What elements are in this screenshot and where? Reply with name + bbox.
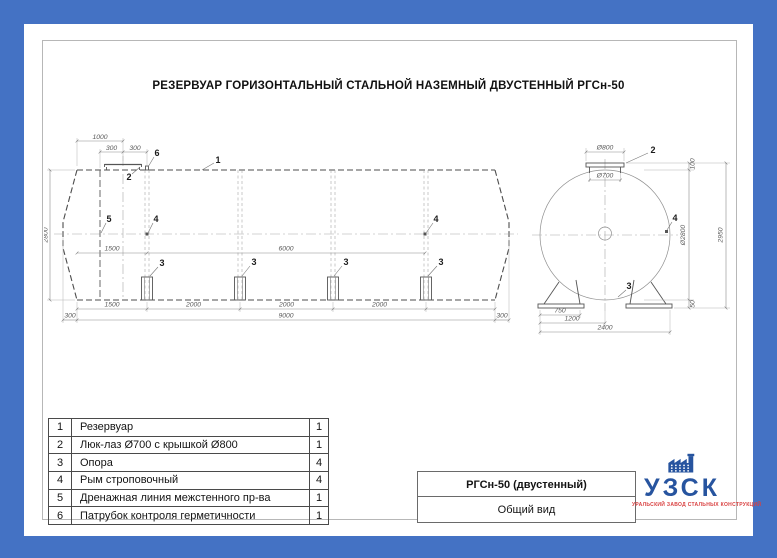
callout-4: 4 — [672, 213, 677, 223]
callout-6: 6 — [154, 148, 159, 158]
part-name-cell: Рым строповочный — [72, 471, 310, 489]
part-number-cell: 2 — [49, 436, 72, 454]
callout-3: 3 — [438, 257, 443, 267]
dim-100: 100 — [690, 158, 697, 170]
dim-2400: 2400 — [596, 325, 612, 332]
dim-6000: 6000 — [278, 246, 293, 253]
dimension-lines-end — [540, 152, 726, 332]
callout-5: 5 — [106, 214, 111, 224]
extension-lines-side — [47, 138, 509, 323]
tank-right-end — [495, 170, 509, 300]
supports-side-view — [142, 277, 432, 300]
side-view: 1000 300 300 2800 1500 6000 1500 2000 20… — [44, 134, 518, 323]
tank-left-end — [63, 170, 77, 300]
dim-2000: 2000 — [185, 302, 201, 309]
factory-icon — [667, 452, 697, 474]
callout-4: 4 — [153, 214, 158, 224]
view-label: Общий вид — [498, 504, 556, 516]
end-view: Ø800 Ø700 100 Ø2800 2950 50 750 1200 240… — [532, 145, 730, 336]
dim-50: 50 — [690, 300, 697, 308]
callout-4: 4 — [433, 214, 438, 224]
callout-3: 3 — [159, 258, 164, 268]
page-title: РЕЗЕРВУАР ГОРИЗОНТАЛЬНЫЙ СТАЛЬНОЙ НАЗЕМН… — [24, 80, 753, 92]
callout-3: 3 — [343, 257, 348, 267]
part-name-cell: Патрубок контроля герметичности — [72, 507, 310, 525]
part-qty-cell: 1 — [310, 419, 329, 437]
logo-text: УЗСК — [632, 475, 732, 501]
parts-table: 1 Резервуар 1 2 Люк-лаз Ø700 с крышкой Ø… — [48, 418, 329, 525]
logo-subtitle: УРАЛЬСКИЙ ЗАВОД СТАЛЬНЫХ КОНСТРУКЦИЙ — [632, 502, 732, 508]
uzsk-logo: УЗСК УРАЛЬСКИЙ ЗАВОД СТАЛЬНЫХ КОНСТРУКЦИ… — [632, 452, 732, 508]
extension-lines-end — [540, 148, 730, 335]
callout-3: 3 — [251, 257, 256, 267]
dim-d700: Ø700 — [596, 173, 614, 180]
part-number-cell: 4 — [49, 471, 72, 489]
dimension-lines-side — [50, 141, 509, 320]
dim-1000: 1000 — [92, 134, 107, 141]
part-number-cell: 5 — [49, 489, 72, 507]
table-row: 6 Патрубок контроля герметичности 1 — [49, 507, 329, 525]
dim-d800: Ø800 — [596, 145, 614, 152]
part-qty-cell: 4 — [310, 471, 329, 489]
dim-1200: 1200 — [564, 316, 579, 323]
dim-2950: 2950 — [718, 227, 725, 243]
drawing-viewer-page: { "title": "РЕЗЕРВУАР ГОРИЗОНТАЛЬНЫЙ СТА… — [0, 0, 777, 558]
callout-1: 1 — [215, 155, 220, 165]
dim-2000: 2000 — [278, 302, 294, 309]
title-block-model: РГСн-50 (двустенный) — [417, 471, 636, 499]
part-number-cell: 3 — [49, 454, 72, 472]
callout-3: 3 — [626, 281, 631, 291]
part-qty-cell: 1 — [310, 489, 329, 507]
part-qty-cell: 1 — [310, 436, 329, 454]
part-number-cell: 1 — [49, 419, 72, 437]
dim-2000: 2000 — [371, 302, 387, 309]
table-row: 5 Дренажная линия межстенного пр-ва 1 — [49, 489, 329, 507]
part-name-cell: Дренажная линия межстенного пр-ва — [72, 489, 310, 507]
dim-1500-inner: 1500 — [104, 246, 119, 253]
table-row: 3 Опора 4 — [49, 454, 329, 472]
callout-2: 2 — [650, 145, 655, 155]
dim-300-base: 300 — [496, 313, 508, 320]
internal-rib-lines — [145, 170, 428, 300]
part-number-cell: 6 — [49, 507, 72, 525]
dim-2800: 2800 — [44, 227, 50, 243]
lifting-lug-marker — [665, 230, 668, 233]
technical-drawing: 1000 300 300 2800 1500 6000 1500 2000 20… — [44, 134, 744, 374]
part-qty-cell: 4 — [310, 454, 329, 472]
title-block-view: Общий вид — [417, 496, 636, 523]
dim-1500: 1500 — [104, 302, 119, 309]
document-page: РЕЗЕРВУАР ГОРИЗОНТАЛЬНЫЙ СТАЛЬНОЙ НАЗЕМН… — [24, 24, 753, 536]
table-row: 4 Рым строповочный 4 — [49, 471, 329, 489]
dim-9000: 9000 — [278, 313, 293, 320]
callout-2: 2 — [126, 172, 131, 182]
table-row: 2 Люк-лаз Ø700 с крышкой Ø800 1 — [49, 436, 329, 454]
dim-300-base: 300 — [64, 313, 76, 320]
dim-750: 750 — [554, 308, 566, 315]
table-row: 1 Резервуар 1 — [49, 419, 329, 437]
part-name-cell: Люк-лаз Ø700 с крышкой Ø800 — [72, 436, 310, 454]
model-label: РГСн-50 (двустенный) — [466, 479, 587, 491]
dim-d2800: Ø2800 — [680, 225, 687, 247]
part-name-cell: Опора — [72, 454, 310, 472]
dim-300: 300 — [129, 145, 141, 152]
part-qty-cell: 1 — [310, 507, 329, 525]
part-name-cell: Резервуар — [72, 419, 310, 437]
dim-300: 300 — [106, 145, 118, 152]
